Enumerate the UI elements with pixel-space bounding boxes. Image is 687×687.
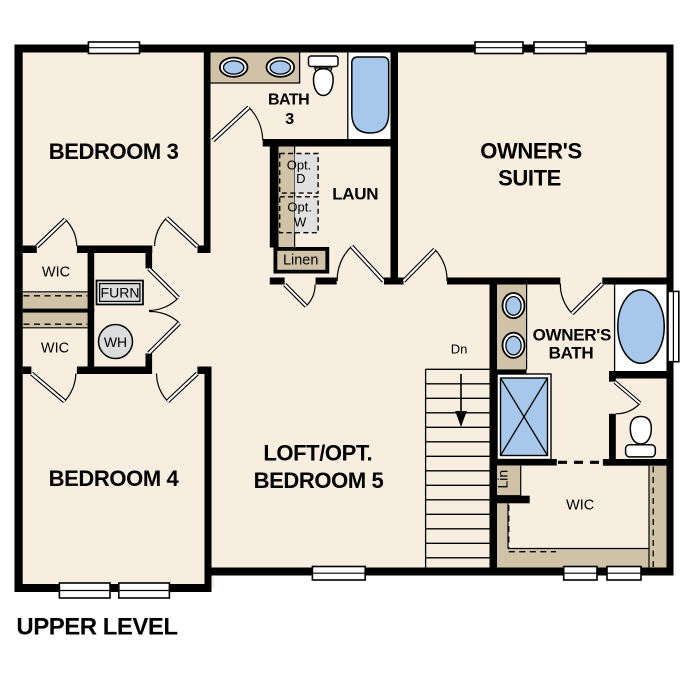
svg-text:LOFT/OPT.: LOFT/OPT. bbox=[263, 440, 372, 465]
svg-text:BATH: BATH bbox=[549, 344, 594, 363]
svg-text:BEDROOM 4: BEDROOM 4 bbox=[49, 466, 180, 491]
svg-text:W: W bbox=[294, 214, 307, 229]
svg-text:BEDROOM 5: BEDROOM 5 bbox=[254, 468, 384, 493]
svg-text:Dn: Dn bbox=[451, 342, 468, 357]
svg-text:FURN: FURN bbox=[101, 284, 140, 300]
svg-text:OWNER'S: OWNER'S bbox=[480, 139, 581, 164]
svg-text:Opt.: Opt. bbox=[287, 200, 312, 215]
svg-text:Linen: Linen bbox=[283, 253, 318, 269]
svg-text:BATH: BATH bbox=[268, 92, 309, 109]
svg-text:UPPER LEVEL: UPPER LEVEL bbox=[16, 614, 177, 641]
svg-text:SUITE: SUITE bbox=[498, 166, 561, 191]
svg-text:WIC: WIC bbox=[42, 265, 70, 281]
svg-text:D: D bbox=[296, 171, 305, 186]
svg-text:Lin: Lin bbox=[495, 470, 511, 489]
svg-text:WH: WH bbox=[104, 334, 127, 350]
svg-text:BEDROOM 3: BEDROOM 3 bbox=[49, 139, 179, 164]
svg-text:OWNER'S: OWNER'S bbox=[533, 325, 611, 344]
svg-text:WIC: WIC bbox=[566, 497, 594, 513]
svg-text:3: 3 bbox=[285, 111, 294, 128]
svg-text:WIC: WIC bbox=[41, 340, 69, 356]
svg-text:LAUN: LAUN bbox=[332, 185, 378, 204]
